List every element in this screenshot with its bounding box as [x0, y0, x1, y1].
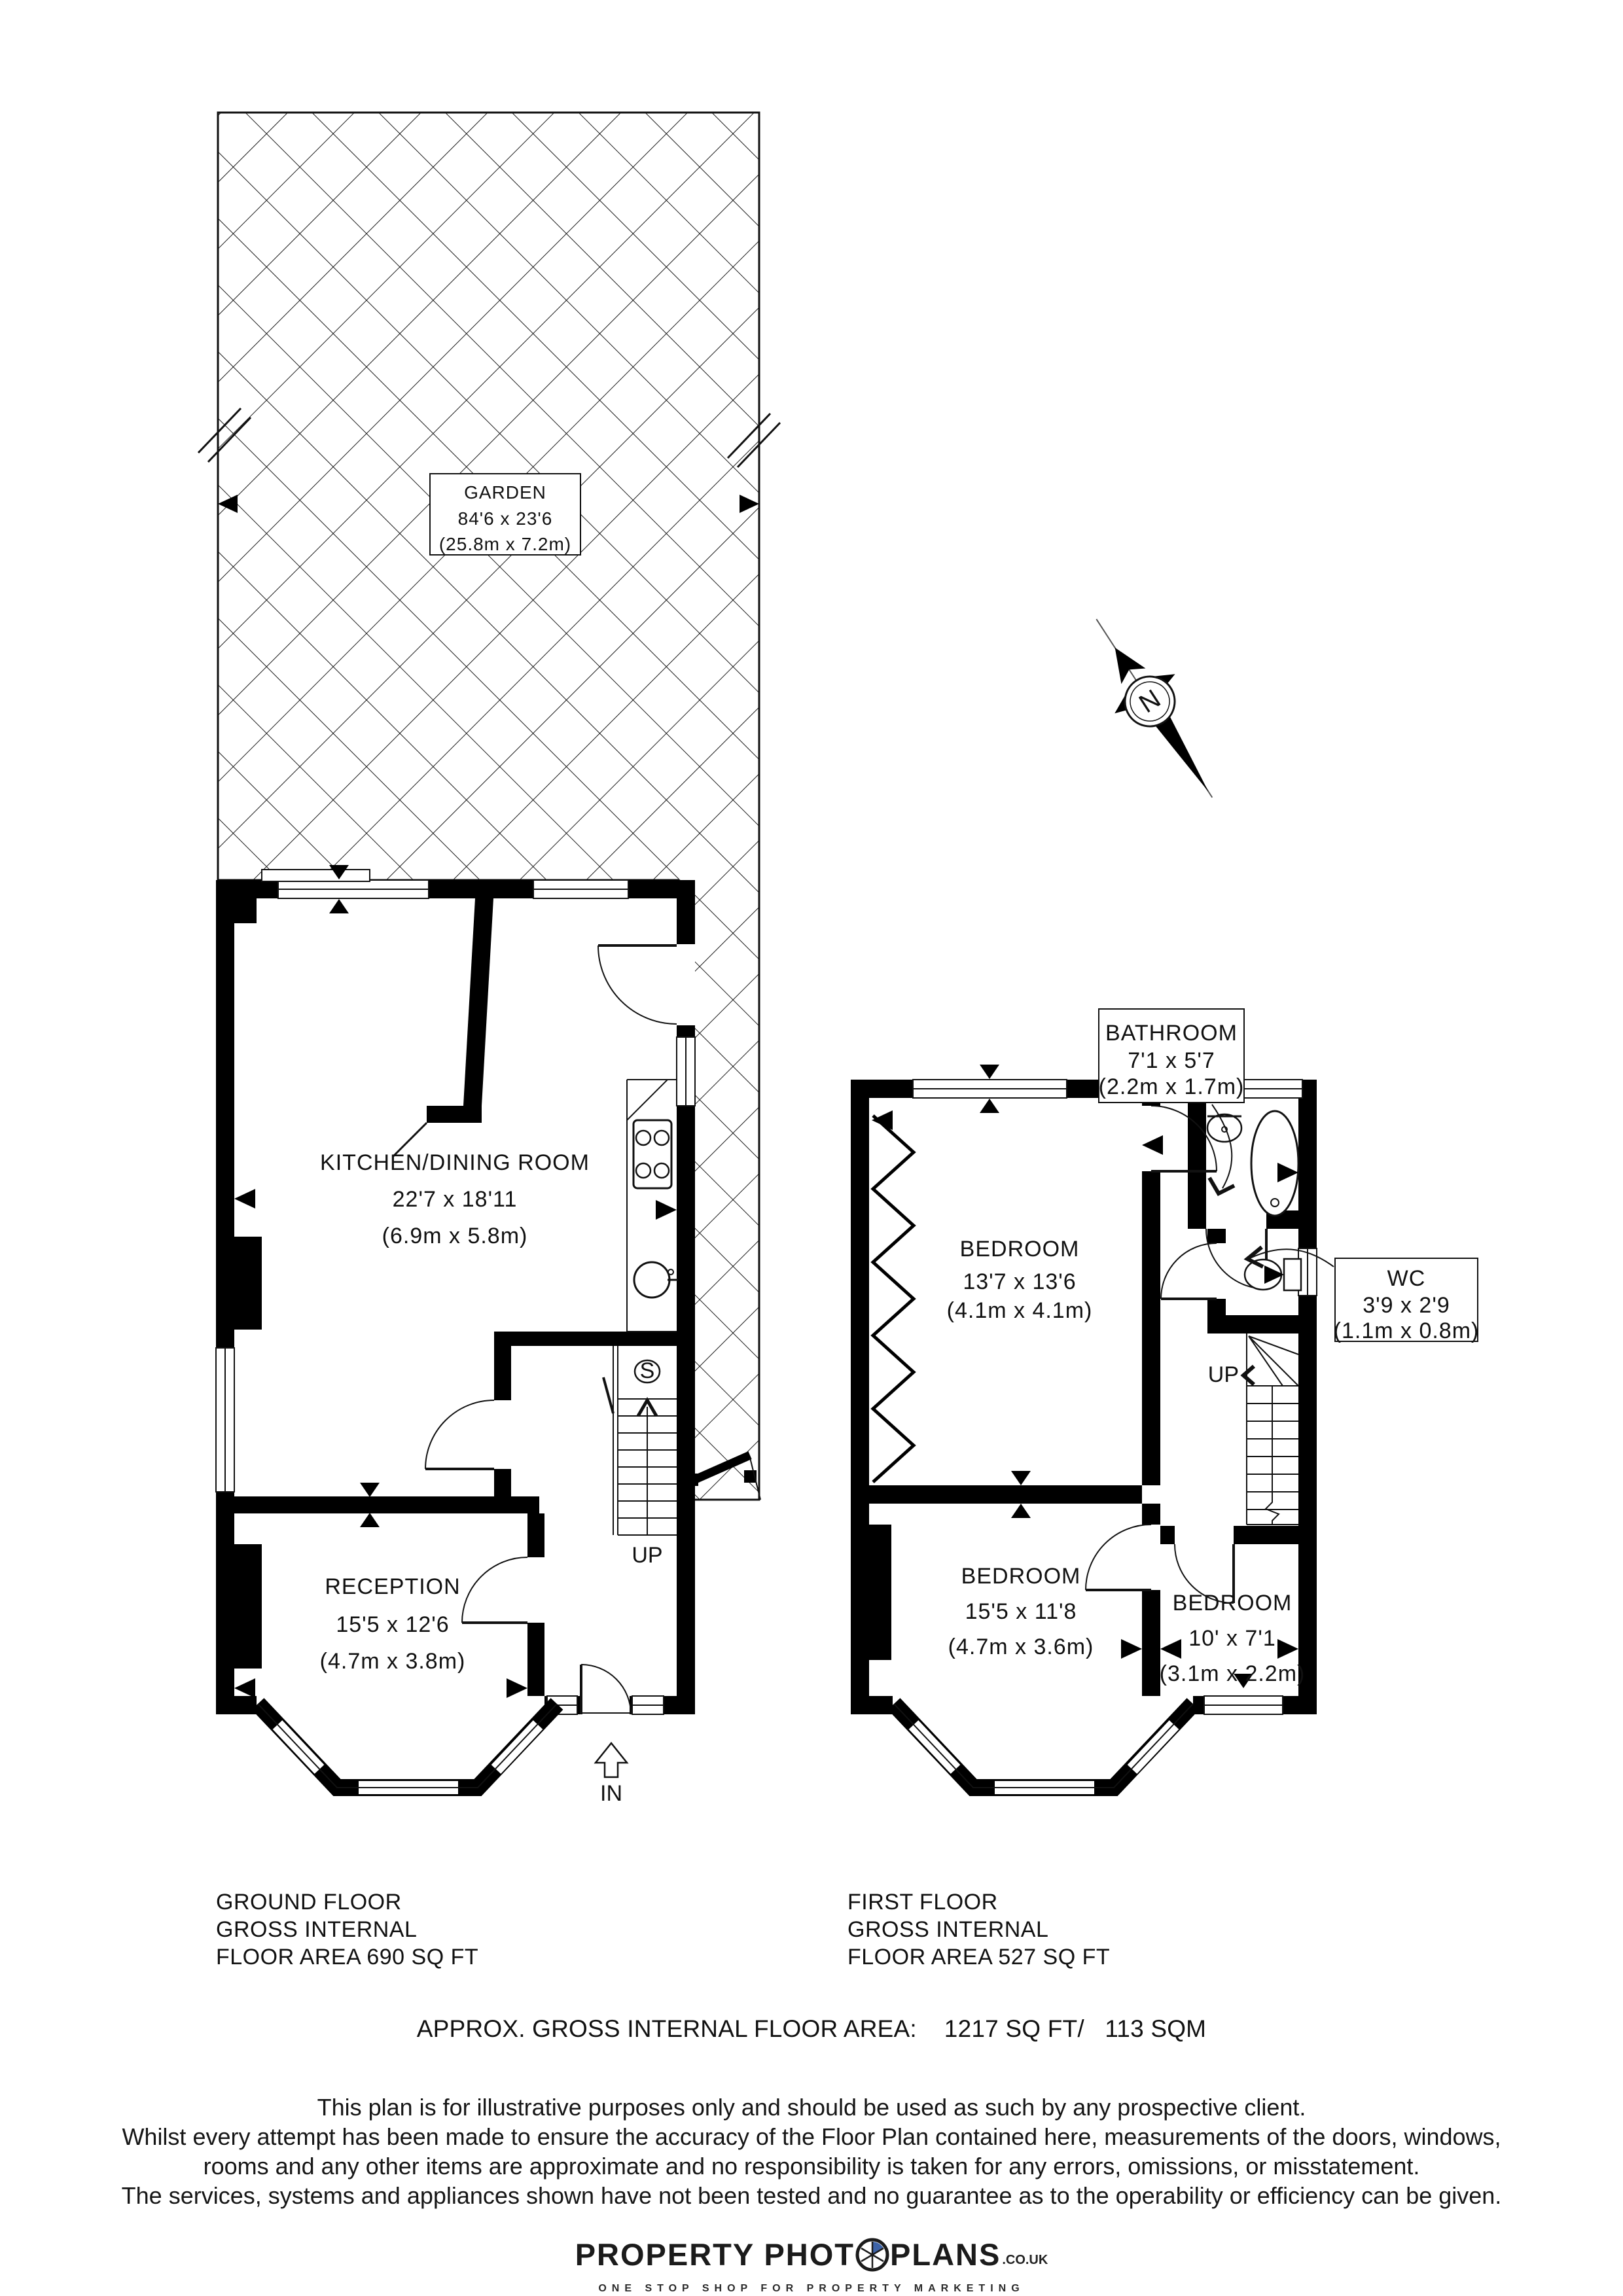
bedroom3-size-metric: (3.1m x 2.2m) [1160, 1661, 1306, 1686]
room-label-bedroom3: BEDROOM 10' x 7'1 (3.1m x 2.2m) [1160, 1591, 1306, 1686]
logo-word-left: PROPERTY PHOT [575, 2236, 855, 2272]
approx-area-line: APPROX. GROSS INTERNAL FLOOR AREA: 1217 … [0, 2015, 1623, 2043]
bedroom2-door [1086, 1525, 1151, 1590]
ground-floor-summary: GROUND FLOOR GROSS INTERNAL FLOOR AREA 6… [216, 1888, 478, 1971]
garden-size-metric: (25.8m x 7.2m) [439, 534, 571, 554]
window-icon [216, 1348, 234, 1492]
room-label-bedroom2: BEDROOM 15'5 x 11'8 (4.7m x 3.6m) [948, 1564, 1094, 1659]
kitchen-door [425, 1400, 494, 1469]
sink-icon [634, 1262, 678, 1298]
kitchen-name: KITCHEN/DINING ROOM [320, 1150, 590, 1175]
bedroom1-name: BEDROOM [960, 1237, 1080, 1262]
stairs-up-label: UP [632, 1543, 662, 1568]
bedroom2-size-imperial: 15'5 x 11'8 [965, 1599, 1077, 1624]
disclaimer-line4: The services, systems and appliances sho… [0, 2181, 1623, 2210]
wc-door [1161, 1243, 1217, 1299]
ground-summary-line3: FLOOR AREA 690 SQ FT [216, 1943, 478, 1971]
disclaimer-block: This plan is for illustrative purposes o… [0, 2093, 1623, 2210]
room-label-bathroom: BATHROOM 7'1 x 5'7 (2.2m x 1.7m) [1099, 1009, 1245, 1103]
bathroom-size-imperial: 7'1 x 5'7 [1128, 1048, 1215, 1073]
first-summary-line3: FLOOR AREA 527 SQ FT [847, 1943, 1110, 1971]
back-door [598, 944, 695, 1025]
measure-arrows-ground [234, 865, 677, 1698]
bedroom1-size-metric: (4.1m x 4.1m) [947, 1298, 1093, 1323]
storage-label: S [640, 1358, 655, 1383]
wc-size-imperial: 3'9 x 2'9 [1363, 1293, 1450, 1318]
logo-domain: .CO.UK [1002, 2253, 1048, 2268]
stairs-first [1247, 1333, 1298, 1525]
bedroom1-size-imperial: 13'7 x 13'6 [963, 1269, 1076, 1294]
entrance-label: IN [600, 1781, 622, 1806]
disclaimer-line3: rooms and any other items are approximat… [0, 2151, 1623, 2181]
room-label-bedroom1: BEDROOM 13'7 x 13'6 (4.1m x 4.1m) [947, 1237, 1093, 1323]
entrance-arrow-icon [596, 1743, 627, 1777]
first-summary-line1: FIRST FLOOR [847, 1888, 1110, 1916]
disclaimer-line1: This plan is for illustrative purposes o… [0, 2093, 1623, 2122]
reception-size-imperial: 15'5 x 12'6 [336, 1612, 449, 1637]
bay-window-icon [893, 1696, 1193, 1788]
wc-size-metric: (1.1m x 0.8m) [1334, 1318, 1480, 1343]
kitchen-size-imperial: 22'7 x 18'11 [393, 1187, 518, 1212]
wardrobe-zigzag-icon [873, 1116, 914, 1482]
logo-tagline: ONE STOP SHOP FOR PROPERTY MARKETING [0, 2283, 1623, 2295]
window-icon [1204, 1696, 1283, 1714]
hob-icon [633, 1120, 671, 1188]
first-summary-line2: GROSS INTERNAL [847, 1916, 1110, 1943]
garden-name: GARDEN [464, 482, 546, 503]
reception-size-metric: (4.7m x 3.8m) [320, 1649, 466, 1674]
garden-label: GARDEN 84'6 x 23'6 (25.8m x 7.2m) [430, 474, 580, 555]
bedroom3-size-imperial: 10' x 7'1 [1188, 1626, 1276, 1651]
bathroom-size-metric: (2.2m x 1.7m) [1099, 1074, 1245, 1099]
bathroom-name: BATHROOM [1105, 1021, 1238, 1046]
reception-name: RECEPTION [325, 1574, 460, 1599]
bedroom3-name: BEDROOM [1173, 1591, 1293, 1616]
room-label-reception: RECEPTION 15'5 x 12'6 (4.7m x 3.8m) [320, 1574, 466, 1674]
ground-summary-line1: GROUND FLOOR [216, 1888, 478, 1916]
stairs-up-label: UP [1208, 1362, 1239, 1387]
reception-door [462, 1557, 527, 1623]
aperture-icon [855, 2238, 889, 2272]
bay-window-icon [257, 1696, 557, 1788]
first-floor-summary: FIRST FLOOR GROSS INTERNAL FLOOR AREA 52… [847, 1888, 1110, 1971]
basin-icon [1207, 1114, 1241, 1142]
floorplan-page: GARDEN 84'6 x 23'6 (25.8m x 7.2m) [0, 0, 1623, 2296]
storage-icon: S [635, 1358, 660, 1383]
bath-icon [1251, 1111, 1298, 1216]
wc-name: WC [1387, 1266, 1426, 1291]
property-photo-plans-logo: PROPERTY PHOT PLANS .CO.UK [0, 2236, 1623, 2272]
kitchen-size-metric: (6.9m x 5.8m) [382, 1224, 528, 1248]
room-label-kitchen: KITCHEN/DINING ROOM 22'7 x 18'11 (6.9m x… [320, 1150, 590, 1248]
bedroom2-size-metric: (4.7m x 3.6m) [948, 1634, 1094, 1659]
compass-icon: N [1066, 599, 1242, 817]
window-icon [677, 1037, 695, 1106]
disclaimer-line2: Whilst every attempt has been made to en… [0, 2122, 1623, 2151]
front-entrance [547, 1665, 664, 1714]
ground-summary-line2: GROSS INTERNAL [216, 1916, 478, 1943]
room-label-wc: WC 3'9 x 2'9 (1.1m x 0.8m) [1334, 1258, 1480, 1343]
logo-word-right: PLANS [890, 2236, 1001, 2272]
first-floor-plan: UP [851, 1009, 1479, 1788]
garden-size-imperial: 84'6 x 23'6 [458, 508, 553, 529]
ground-floor-plan: S UP [216, 865, 695, 1806]
bedroom2-name: BEDROOM [961, 1564, 1081, 1589]
